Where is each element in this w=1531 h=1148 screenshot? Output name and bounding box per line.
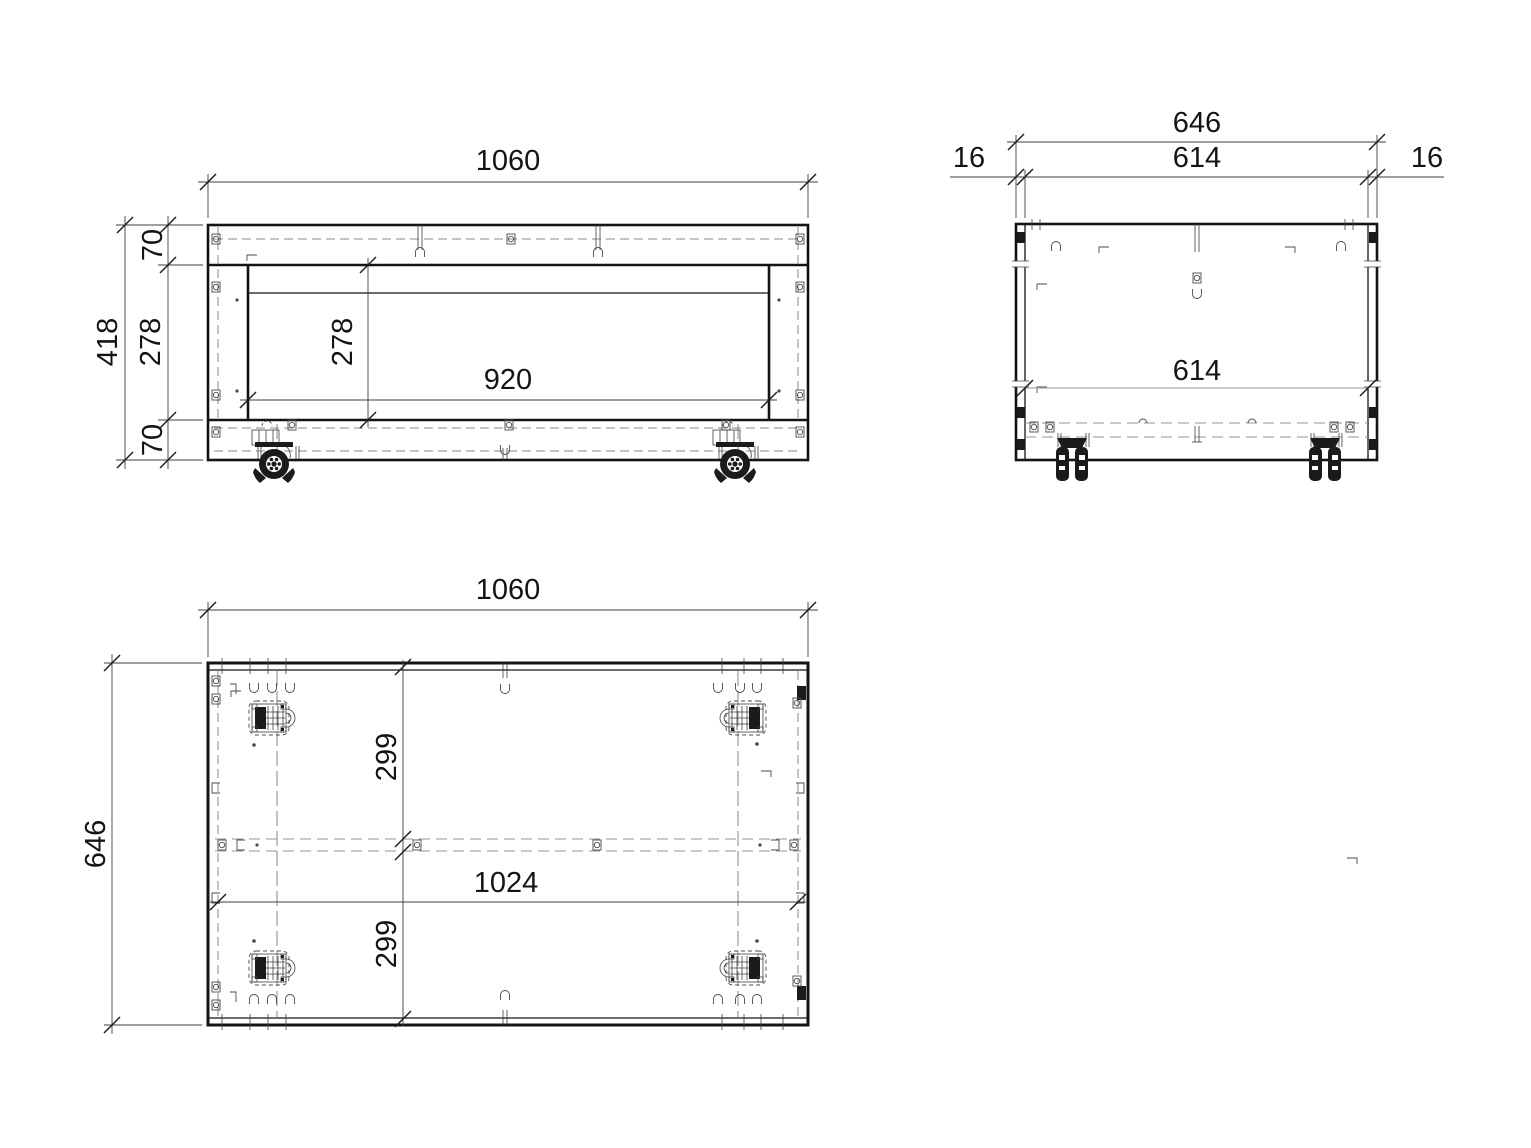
bottom-dimensions: 1060 646 299 299 1024	[80, 574, 818, 1034]
side-outline	[1012, 224, 1381, 460]
dim-bottom-inner-width: 1024	[474, 867, 539, 899]
dim-front-top-rail: 70	[137, 229, 169, 261]
caster-icon	[713, 421, 756, 483]
dim-front-middle-height: 278	[135, 318, 167, 366]
caster-icon	[720, 951, 766, 985]
bottom-fittings	[212, 658, 806, 1148]
dim-bottom-overall-width: 1060	[476, 574, 541, 606]
side-dimensions: 646 16 614 16 614	[950, 107, 1444, 396]
bottom-outline	[208, 663, 808, 1025]
dim-front-overall-width: 1060	[476, 145, 541, 177]
side-view: 646 16 614 16 614	[950, 107, 1444, 1148]
caster-icon	[249, 701, 295, 735]
cabinet-technical-drawing: 1060 418 70 278 70 278	[0, 0, 1531, 1148]
dim-side-front-panel: 16	[953, 142, 985, 174]
dim-side-overall-depth: 646	[1173, 107, 1221, 139]
dim-side-inner-depth: 614	[1173, 355, 1221, 387]
dim-bottom-overall-depth: 646	[80, 820, 112, 868]
bottom-casters	[249, 701, 766, 985]
caster-icon	[249, 951, 295, 985]
dim-front-bottom-rail: 70	[137, 424, 169, 456]
dim-side-back-panel: 16	[1411, 142, 1443, 174]
side-hidden-edges	[1025, 423, 1368, 437]
front-view: 1060 418 70 278 70 278	[92, 145, 818, 777]
dim-bottom-front-caster-offset: 299	[371, 733, 403, 781]
front-casters	[252, 421, 756, 483]
dim-front-overall-height: 418	[92, 318, 124, 366]
dim-bottom-back-caster-offset: 299	[371, 920, 403, 968]
bottom-hidden-edges	[215, 671, 801, 1017]
drawing-sheet: 1060 418 70 278 70 278	[0, 0, 1531, 1148]
front-outline	[208, 225, 808, 460]
dim-front-opening-width: 920	[484, 364, 532, 396]
dim-side-top-inner-depth: 614	[1173, 142, 1221, 174]
dim-front-opening-height: 278	[327, 318, 359, 366]
front-fittings	[212, 225, 804, 777]
caster-icon	[720, 701, 766, 735]
bottom-view: 1060 646 299 299 1024	[80, 574, 818, 1148]
